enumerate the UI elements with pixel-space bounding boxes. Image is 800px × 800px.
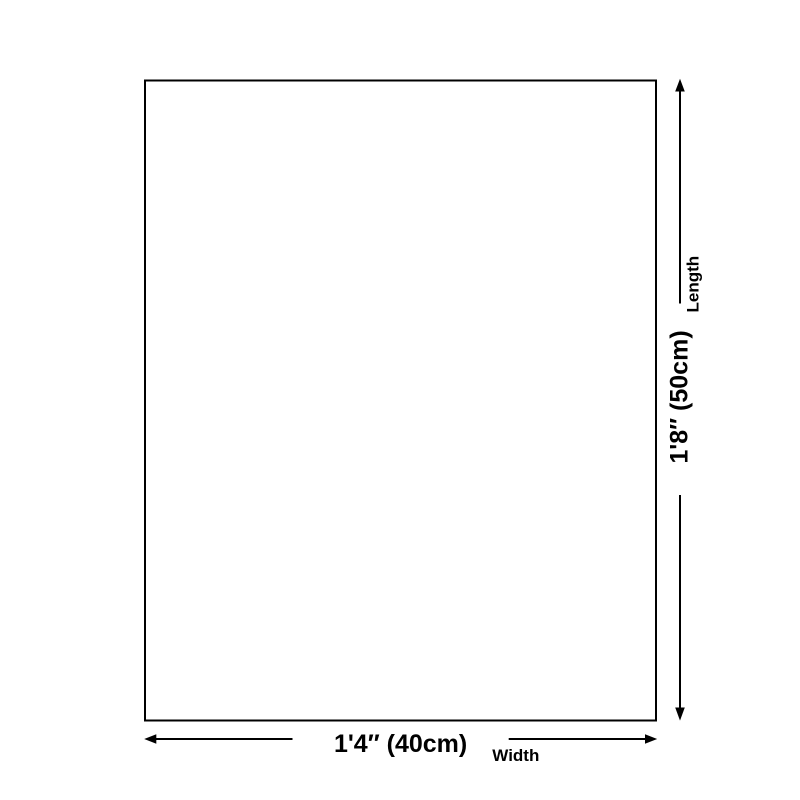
svg-text:Width: Width <box>492 746 539 765</box>
svg-text:Length: Length <box>684 256 703 313</box>
svg-text:1'4″ (40cm): 1'4″ (40cm) <box>334 730 467 758</box>
svg-text:1'8″ (50cm): 1'8″ (50cm) <box>666 330 694 463</box>
